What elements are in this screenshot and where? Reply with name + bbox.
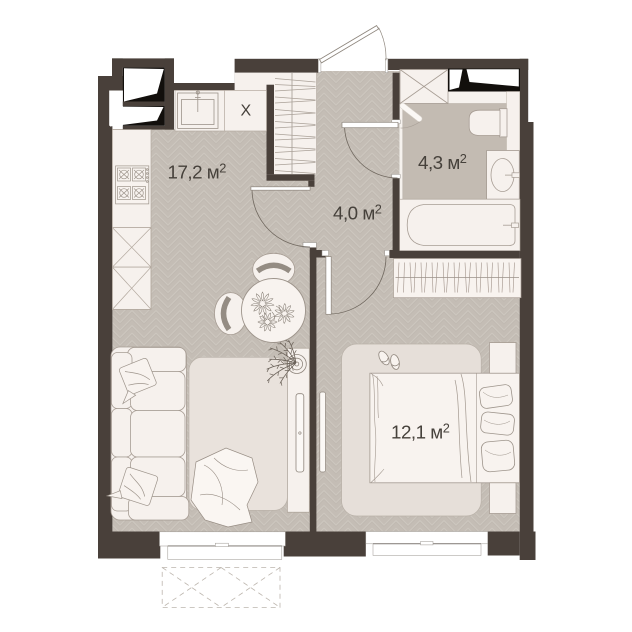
svg-text:17,2 м2: 17,2 м2 (168, 161, 227, 183)
svg-text:12,1 м2: 12,1 м2 (391, 421, 450, 443)
svg-text:4,3 м2: 4,3 м2 (418, 151, 467, 173)
svg-text:X: X (241, 103, 252, 120)
svg-text:4,0 м2: 4,0 м2 (333, 202, 382, 224)
